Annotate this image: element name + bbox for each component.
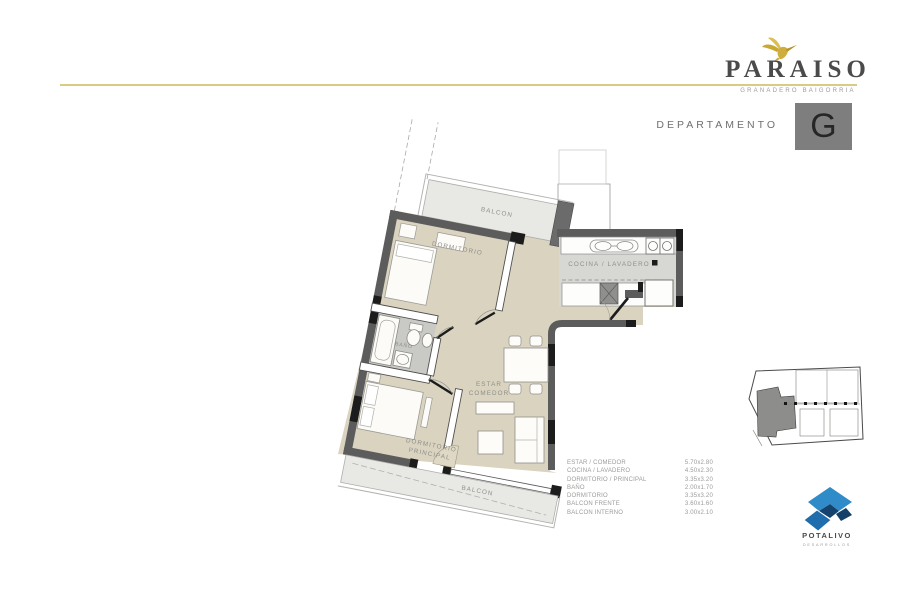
- room-size: 2.00x1.70: [685, 484, 713, 492]
- table-row: DORMITORIO / PRINCIPAL 3.35x3.20: [567, 476, 713, 484]
- room-size: 3.35x3.20: [685, 492, 713, 500]
- kitchen-wing: COCINA / LAVADERO: [557, 229, 683, 307]
- table-row: BALCON INTERNO 3.00x2.10: [567, 509, 713, 517]
- room-size: 3.00x2.10: [685, 509, 713, 517]
- estar-label-2: COMEDOR: [469, 390, 510, 397]
- washer: [646, 238, 660, 254]
- room-size: 3.60x1.60: [685, 500, 713, 508]
- room-name: DORMITORIO: [567, 492, 608, 500]
- chair: [530, 336, 542, 346]
- room-size: 4.50x2.30: [685, 467, 713, 475]
- room-name: ESTAR / COMEDOR: [567, 459, 626, 467]
- coffee-table: [478, 431, 503, 454]
- table-row: BALCON FRENTE 3.60x1.60: [567, 500, 713, 508]
- projection-line: [427, 122, 438, 179]
- laundry-sink: [660, 238, 674, 254]
- cocina-label: COCINA / LAVADERO: [568, 261, 649, 268]
- column: [676, 296, 683, 307]
- room-size: 5.70x2.80: [685, 459, 713, 467]
- room-name: BALCON INTERNO: [567, 509, 623, 517]
- chair: [530, 384, 542, 394]
- table-row: DORMITORIO 3.35x3.20: [567, 492, 713, 500]
- column: [676, 229, 683, 251]
- table-row: ESTAR / COMEDOR 5.70x2.80: [567, 459, 713, 467]
- room-name: BALCON FRENTE: [567, 500, 620, 508]
- dimensions-table: ESTAR / COMEDOR 5.70x2.80 COCINA / LAVAD…: [567, 459, 713, 517]
- dining-table: [504, 348, 548, 382]
- key-plan: [749, 367, 863, 446]
- estar-label-1: ESTAR: [476, 381, 502, 388]
- table-row: BAÑO 2.00x1.70: [567, 484, 713, 492]
- label-marker: [652, 260, 658, 266]
- chair: [509, 384, 521, 394]
- projection-outline: [559, 150, 606, 184]
- column: [638, 282, 643, 292]
- room-name: COCINA / LAVADERO: [567, 467, 630, 475]
- developer-subtitle: DESARROLLOS: [803, 543, 851, 547]
- sink-counter: [393, 350, 413, 368]
- brochure-page: { "brand": { "name": "PARAISO", "tagline…: [0, 0, 900, 600]
- developer-name: POTALIVO: [802, 531, 852, 540]
- table-row: COCINA / LAVADERO 4.50x2.30: [567, 467, 713, 475]
- room-name: BAÑO: [567, 484, 585, 492]
- drawing-canvas: BALCON BALCON: [0, 0, 900, 600]
- chair: [509, 336, 521, 346]
- sideboard: [476, 402, 514, 414]
- wall: [557, 229, 683, 237]
- nightstand: [399, 223, 417, 239]
- curved-wall: [552, 324, 637, 471]
- fridge: [645, 280, 673, 306]
- room-size: 3.35x3.20: [685, 476, 713, 484]
- projection-line: [394, 117, 412, 210]
- room-name: DORMITORIO / PRINCIPAL: [567, 476, 647, 484]
- potalivo-logo: POTALIVO DESARROLLOS: [802, 487, 852, 547]
